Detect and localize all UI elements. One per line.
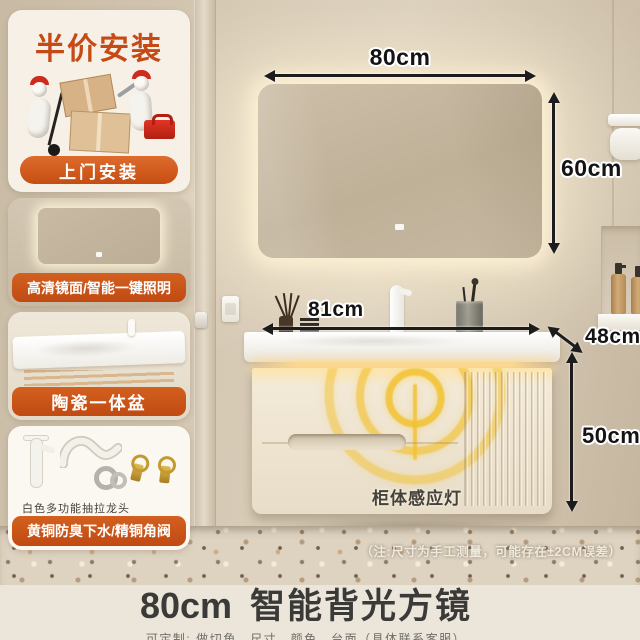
customization-note: 可定制: 做切角、尺寸、颜色、台面（具体联系客服）	[146, 630, 466, 640]
mini-mirror-touch	[96, 252, 102, 257]
light-switch	[222, 296, 239, 322]
hand-truck-wheel	[48, 144, 60, 156]
feature-card-mirror: 高清镜面/智能一键照明	[8, 198, 190, 306]
vanity-cabinet: 柜体感应灯	[252, 368, 552, 514]
counter-width-arrow	[266, 327, 536, 330]
ceramic-countertop	[244, 332, 560, 362]
soap-bottle	[631, 277, 640, 314]
counter-depth-label: 48cm	[585, 325, 640, 349]
installer-head	[32, 82, 47, 97]
p-trap-pipe	[60, 434, 122, 468]
install-banner: 上门安装	[20, 156, 178, 184]
basin-feature-banner: 陶瓷一体盆	[12, 387, 186, 416]
drain-feature-banner: 黄铜防臭下水/精铜角阀	[12, 516, 186, 546]
fluted-panel	[464, 372, 548, 506]
product-title: 80cm 智能背光方镜	[140, 578, 472, 629]
bottle-pump	[615, 263, 622, 274]
wood-rack	[24, 370, 174, 386]
counter-width-label: 81cm	[308, 298, 364, 322]
cabinet-height-label: 50cm	[582, 423, 640, 449]
mirror-height-label: 60cm	[561, 155, 622, 182]
door-edge	[194, 0, 216, 528]
feature-card-basin: 陶瓷一体盆	[8, 312, 190, 420]
promo-card-installation: 半价安装 上门安装	[8, 10, 190, 192]
mini-basin	[12, 331, 185, 369]
installer-head	[134, 76, 149, 91]
mirror-height-arrow	[552, 96, 555, 250]
towel-bar	[608, 114, 640, 126]
mirror-feature-banner: 高清镜面/智能一键照明	[12, 273, 186, 302]
flex-hose	[110, 472, 127, 489]
cardboard-box	[69, 110, 131, 153]
product-image: 柜体感应灯 （注:尺寸为手工测量，可能存在±2CM误差） 80cm 60cm 8…	[0, 0, 640, 640]
toolbox-icon	[144, 120, 175, 139]
soap-bottle	[611, 274, 626, 314]
brass-angle-valve	[130, 463, 144, 482]
recessed-handle	[288, 434, 406, 450]
brass-angle-valve	[159, 466, 171, 484]
product-name: 智能背光方镜	[250, 578, 472, 629]
product-size: 80cm	[140, 585, 232, 627]
installer-illustration	[18, 64, 180, 164]
sensor-light-label: 柜体感应灯	[372, 484, 462, 509]
mirror-width-label: 80cm	[258, 44, 542, 71]
promo-title: 半价安装	[8, 24, 190, 68]
installer-body	[26, 97, 52, 139]
cabinet-height-arrow	[570, 356, 573, 508]
door-handle	[195, 312, 207, 328]
faucet-caption: 白色多功能抽拉龙头	[22, 500, 130, 516]
hardware-illustration	[8, 430, 190, 498]
mirror-width-arrow	[268, 74, 532, 77]
mini-faucet	[128, 319, 135, 336]
feature-card-hardware: 白色多功能抽拉龙头 黄铜防臭下水/精铜角阀	[8, 426, 190, 550]
mirror-touch-button	[393, 222, 406, 232]
bottle-pump	[635, 266, 640, 277]
backlit-mirror	[258, 84, 542, 258]
measurement-note: （注:尺寸为手工测量，可能存在±2CM误差）	[345, 541, 637, 560]
mini-mirror	[38, 208, 160, 264]
product-title-banner: 80cm 智能背光方镜 可定制: 做切角、尺寸、颜色、台面（具体联系客服）	[0, 585, 640, 640]
